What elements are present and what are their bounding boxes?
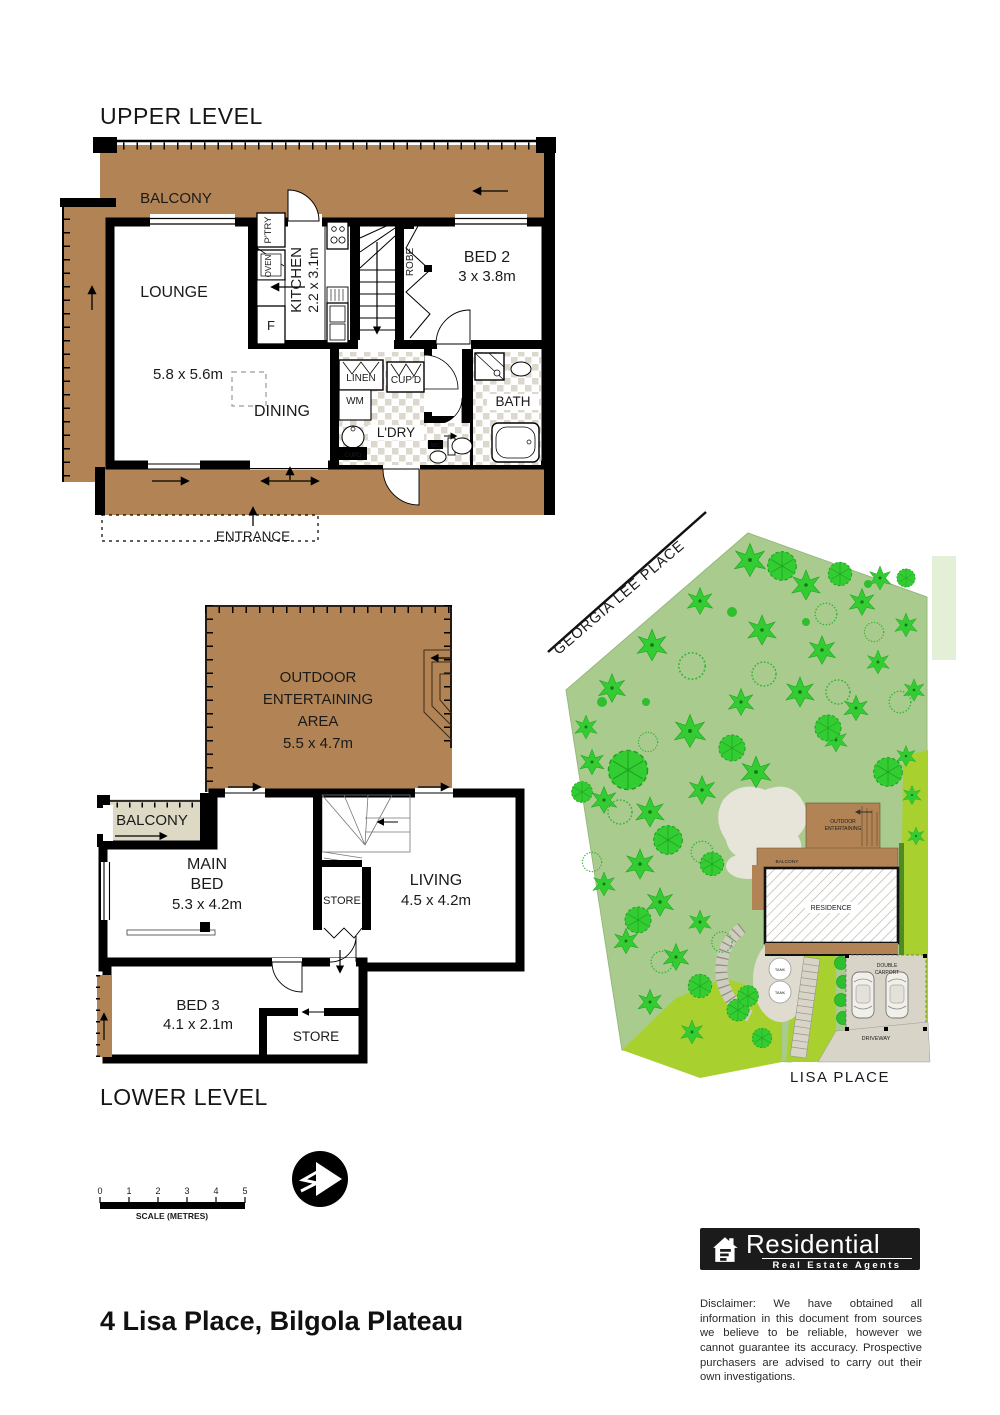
house-icon bbox=[711, 1235, 741, 1263]
label-cupd-small: CUPD bbox=[344, 453, 362, 459]
scale-tick-0: 0 bbox=[97, 1186, 102, 1196]
label-store-mid: STORE bbox=[323, 895, 361, 907]
label-dining: DINING bbox=[254, 403, 310, 420]
label-site-outdoor-2: ENTERTAINING bbox=[825, 826, 862, 832]
label-mainbed-1: MAIN bbox=[187, 856, 227, 873]
label-store-bottom: STORE bbox=[293, 1029, 339, 1044]
label-cupd: CUP'D bbox=[391, 375, 421, 386]
label-pantry: P'TRY bbox=[263, 216, 274, 244]
upper-level-title: UPPER LEVEL bbox=[100, 103, 263, 130]
label-outdoor-2: ENTERTAINING bbox=[263, 691, 373, 708]
label-balcony-lower: BALCONY bbox=[116, 812, 188, 829]
bed3-deck-strip bbox=[97, 975, 112, 1057]
label-kitchen: KITCHEN bbox=[288, 247, 305, 313]
logo-tagline: Real Estate Agents bbox=[762, 1258, 912, 1271]
scale-tick-1: 1 bbox=[126, 1186, 131, 1196]
neighbour-strip bbox=[932, 556, 956, 660]
lower-level-title: LOWER LEVEL bbox=[100, 1084, 268, 1111]
label-site-residence: RESIDENCE bbox=[811, 905, 852, 912]
label-bed2-dim: 3 x 3.8m bbox=[458, 268, 516, 285]
label-kitchen-dim: 2.2 x 3.1m bbox=[305, 247, 321, 312]
label-bed3-dim: 4.1 x 2.1m bbox=[163, 1016, 233, 1033]
label-tank-2: TANK bbox=[775, 990, 786, 995]
label-main-dim: 5.8 x 5.6m bbox=[153, 366, 223, 383]
label-oven: OVEN bbox=[264, 254, 273, 277]
logo-name: Residential bbox=[746, 1229, 880, 1260]
label-outdoor-1: OUTDOOR bbox=[280, 669, 357, 686]
label-tank-1: TANK bbox=[775, 967, 786, 972]
scale-tick-4: 4 bbox=[213, 1186, 218, 1196]
laundry-fixtures bbox=[339, 352, 424, 465]
lower-floor-plan: OUTDOOR ENTERTAINING AREA 5.5 x 4.7m BAL… bbox=[90, 595, 535, 1075]
label-linen: LINEN bbox=[346, 373, 375, 384]
scale-tick-3: 3 bbox=[184, 1186, 189, 1196]
agency-logo: Residential Real Estate Agents bbox=[700, 1228, 920, 1270]
label-fridge: F bbox=[267, 318, 275, 333]
car-2 bbox=[886, 972, 908, 1018]
label-bed3: BED 3 bbox=[176, 997, 219, 1014]
north-arrow-icon bbox=[285, 1145, 355, 1215]
label-carport-1: DOUBLE bbox=[877, 963, 898, 969]
scale-label: SCALE (METRES) bbox=[136, 1211, 208, 1221]
label-ldry: L'DRY bbox=[377, 425, 415, 440]
label-wm: WM bbox=[346, 396, 364, 407]
label-balcony-upper: BALCONY bbox=[140, 190, 212, 207]
label-outdoor-3: AREA bbox=[298, 713, 339, 730]
scale-tick-5: 5 bbox=[242, 1186, 247, 1196]
label-wc: WC bbox=[431, 443, 440, 449]
label-mainbed-2: BED bbox=[191, 876, 224, 893]
label-robe: ROBE bbox=[405, 248, 416, 277]
label-living: LIVING bbox=[410, 872, 462, 889]
label-lounge: LOUNGE bbox=[140, 284, 208, 301]
label-site-outdoor-1: OUTDOOR bbox=[830, 819, 856, 825]
label-mainbed-dim: 5.3 x 4.2m bbox=[172, 896, 242, 913]
upper-floor-plan: BALCONY LOUNGE 5.8 x 5.6m DINING P'TRY O… bbox=[55, 128, 567, 564]
label-carport-2: CARPORT bbox=[875, 970, 899, 976]
site-plan: GEORGIA LEE PLACE bbox=[538, 498, 968, 1098]
label-bed2: BED 2 bbox=[464, 249, 510, 266]
label-entrance: ENTRANCE bbox=[216, 529, 290, 544]
disclaimer-text: Disclaimer: We have obtained all informa… bbox=[700, 1297, 922, 1384]
property-address: 4 Lisa Place, Bilgola Plateau bbox=[100, 1306, 463, 1337]
label-living-dim: 4.5 x 4.2m bbox=[401, 892, 471, 909]
label-site-balcony: BALCONY bbox=[776, 859, 800, 865]
label-lisa-place: LISA PLACE bbox=[790, 1069, 890, 1086]
car-1 bbox=[852, 972, 874, 1018]
floorplan-sheet: UPPER LEVEL LOWER LEVEL bbox=[0, 0, 1000, 1415]
label-bath: BATH bbox=[495, 394, 530, 409]
label-outdoor-dim: 5.5 x 4.7m bbox=[283, 735, 353, 752]
scale-tick-2: 2 bbox=[155, 1186, 160, 1196]
scale-bar: 0 1 2 3 4 5 SCALE (METRES) bbox=[90, 1180, 260, 1225]
label-driveway: DRIVEWAY bbox=[862, 1036, 891, 1042]
